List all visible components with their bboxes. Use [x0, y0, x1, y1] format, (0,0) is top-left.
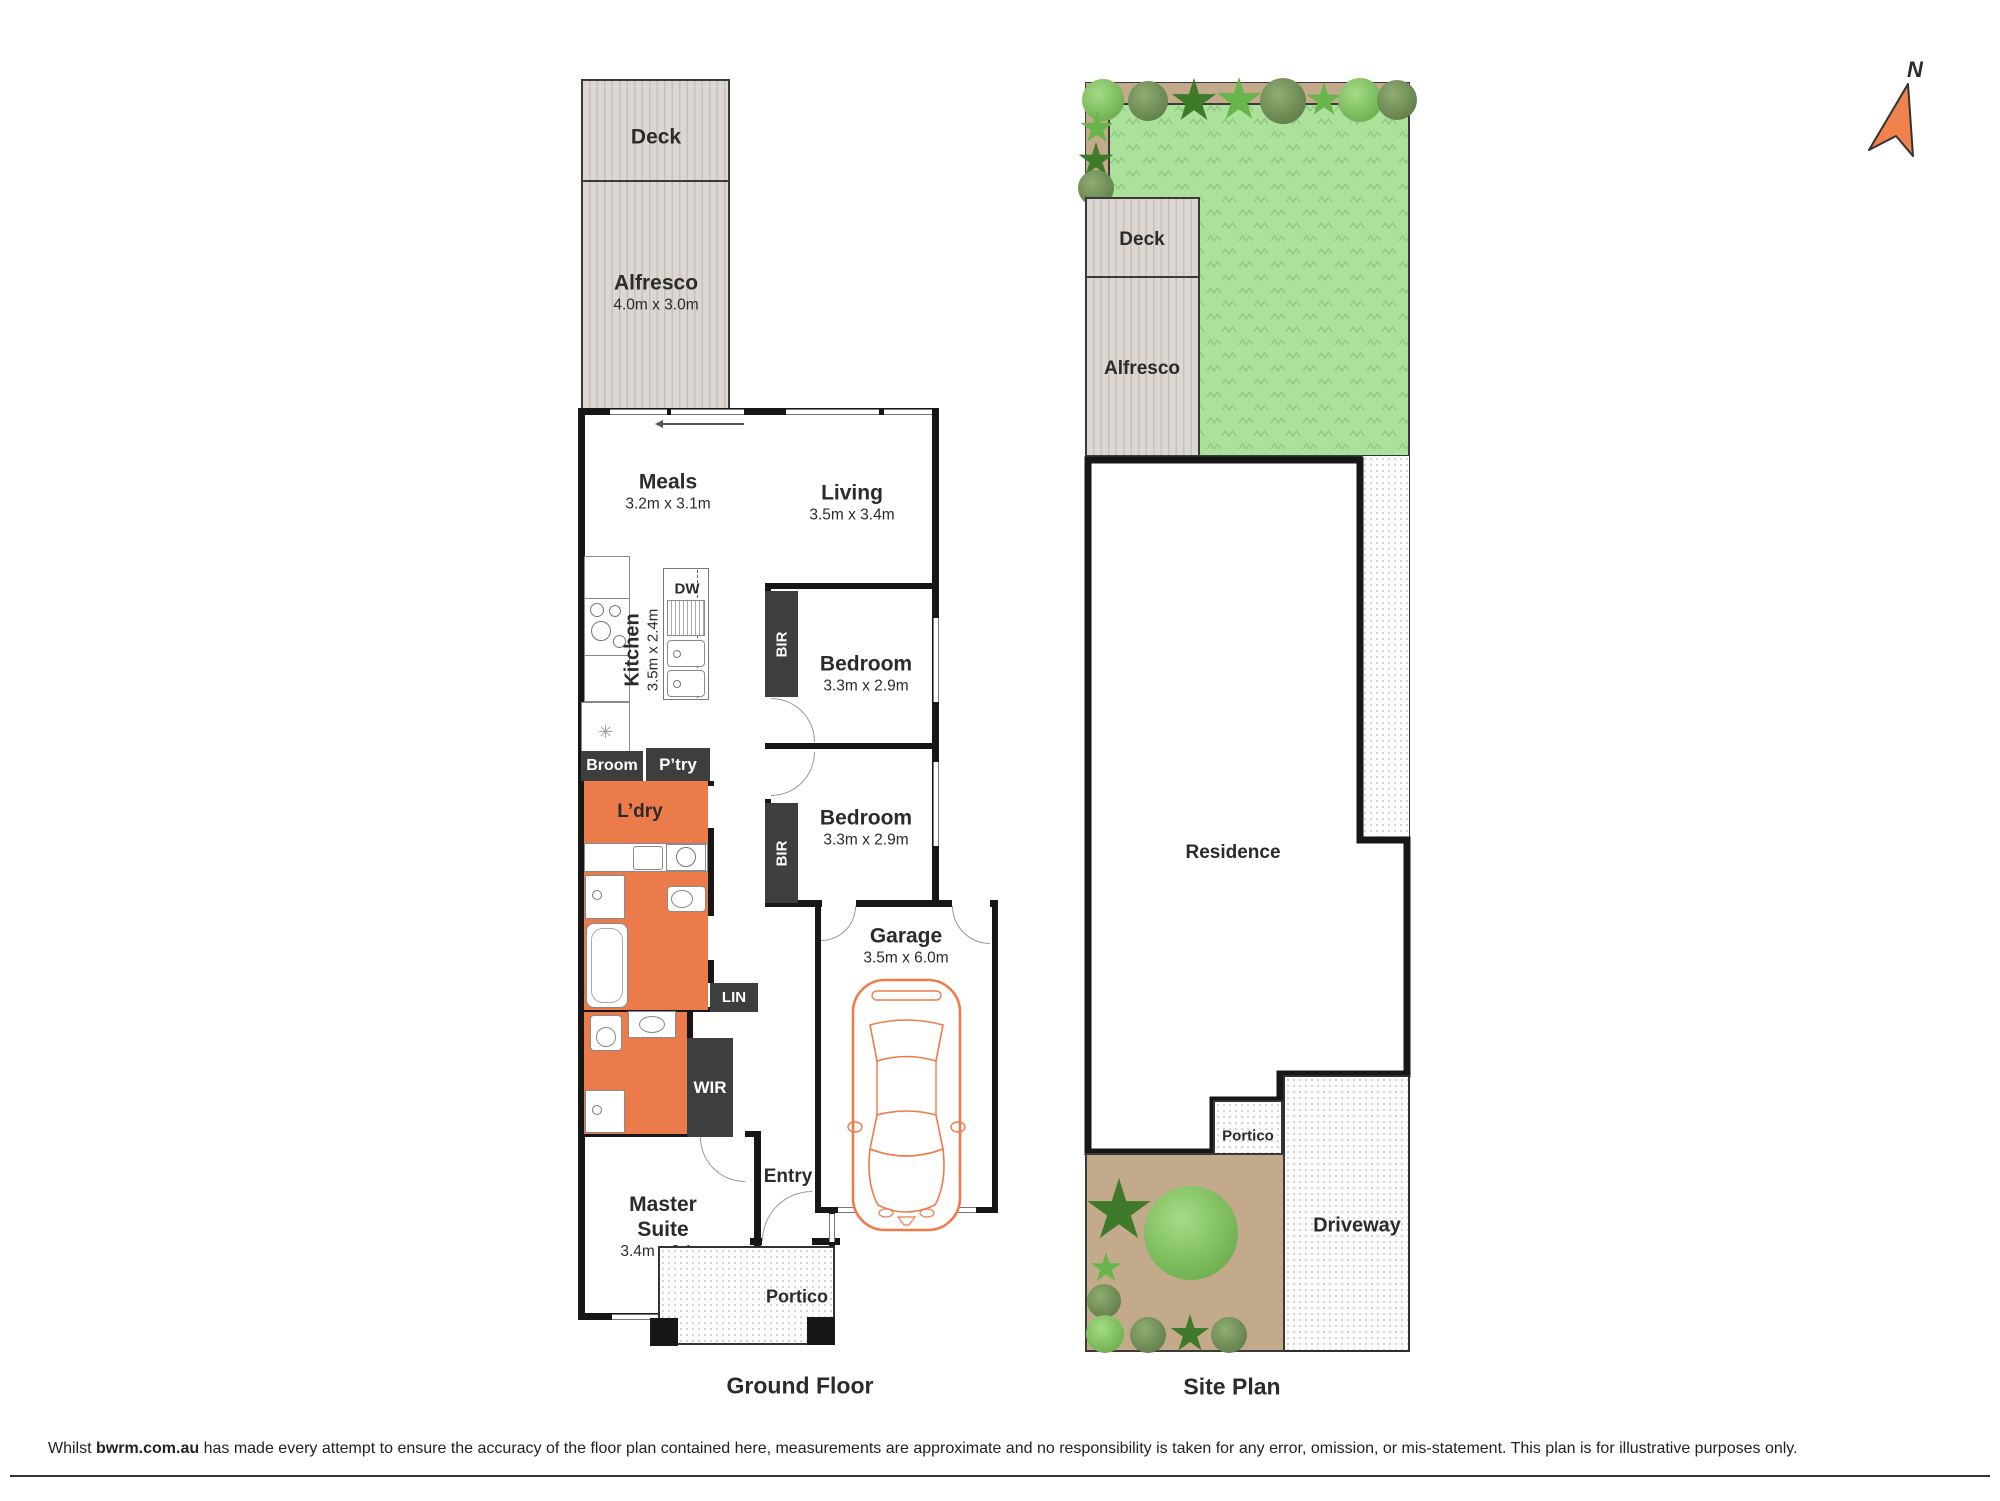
- footer-divider: [10, 1475, 1990, 1477]
- bir-robe-bed1: BIR: [765, 591, 798, 697]
- linen-cupboard: LIN: [710, 983, 758, 1012]
- bedroom1-label: Bedroom 3.3m x 2.9m: [820, 652, 912, 697]
- basin-icon: [639, 1016, 665, 1033]
- vanity-basin: [628, 1011, 676, 1038]
- bush-icon: [1377, 80, 1417, 120]
- window-top-4: [884, 409, 932, 415]
- shower: [585, 875, 625, 919]
- wall-living-bed1: [765, 583, 939, 589]
- sp-alfresco-label: Alfresco: [1104, 358, 1180, 380]
- drain-icon: [673, 680, 681, 688]
- door-gap-bath: [708, 916, 714, 960]
- broom-cupboard: Broom: [581, 751, 643, 781]
- bathtub: [586, 923, 628, 1008]
- living-label: Living 3.5m x 3.4m: [809, 481, 894, 526]
- drain-icon: [592, 890, 602, 900]
- portico-pillar: [650, 1318, 678, 1346]
- door-gap-ldry: [708, 786, 714, 828]
- gf-deck-label: Deck: [631, 124, 681, 149]
- laundry-trough: [633, 846, 663, 870]
- portico-pillar: [807, 1317, 835, 1345]
- bush-icon: [1082, 79, 1124, 121]
- dishwasher: [667, 600, 705, 636]
- drain-icon: [673, 650, 681, 658]
- wall-garage-right: [992, 900, 998, 1213]
- bedroom2-label: Bedroom 3.3m x 2.9m: [820, 806, 912, 851]
- burner-icon: [591, 621, 611, 641]
- sliding-door-arrowhead: [655, 420, 663, 428]
- tree-icon: [1144, 1186, 1238, 1280]
- wall-garage-left: [815, 900, 821, 1213]
- shower: [585, 1090, 625, 1133]
- gf-portico-label: Portico: [766, 1287, 828, 1308]
- bir-robe-bed2: BIR: [765, 803, 798, 903]
- sink-basin: [667, 640, 705, 667]
- toilet: [590, 1015, 622, 1051]
- gf-deck-divider: [581, 180, 730, 182]
- window-bed2: [933, 762, 939, 846]
- garage-label: Garage 3.5m x 6.0m: [863, 924, 948, 969]
- walk-in-robe: WIR: [687, 1038, 733, 1137]
- bathtub-inner: [591, 928, 623, 1003]
- sp-residence-outline: [1080, 452, 1415, 1162]
- entry-label: Entry: [764, 1166, 813, 1188]
- toilet-bowl-icon: [596, 1027, 616, 1047]
- bush-icon: [1087, 1284, 1121, 1318]
- ground-floor-caption: Ground Floor: [727, 1373, 874, 1400]
- toilet-bowl-icon: [671, 890, 693, 908]
- kitchen-label: Kitchen 3.5m x 2.4m: [621, 609, 664, 692]
- car-icon: [846, 975, 967, 1237]
- disclaimer-brand: bwrm.com.au: [96, 1440, 199, 1457]
- drain-icon: [592, 1105, 602, 1115]
- bush-icon: [1130, 1317, 1166, 1353]
- sp-driveway-label: Driveway: [1313, 1215, 1401, 1238]
- window-top-1: [610, 409, 667, 415]
- burner-icon: [590, 603, 604, 617]
- gf-alfresco-label: Alfresco 4.0m x 3.0m: [613, 271, 698, 316]
- sp-driveway-area: [1283, 1075, 1410, 1352]
- bush-icon: [1211, 1317, 1247, 1353]
- sp-portico-label: Portico: [1222, 1128, 1274, 1145]
- wall-bed1-bed2: [765, 743, 939, 749]
- bush-icon: [1338, 78, 1382, 122]
- laundry-label: L’dry: [617, 801, 662, 823]
- pantry-cupboard: P’try: [646, 748, 710, 781]
- sp-deck-label: Deck: [1119, 229, 1164, 251]
- window-bed1: [933, 618, 939, 702]
- disclaimer-part1: Whilst: [48, 1440, 96, 1457]
- sp-residence-label: Residence: [1185, 842, 1280, 864]
- disclaimer-text: Whilst bwrm.com.au has made every attemp…: [48, 1440, 1798, 1458]
- bush-icon: [1128, 81, 1168, 121]
- sliding-door-arrow: [662, 423, 744, 425]
- bush-icon: [1260, 78, 1306, 124]
- meals-label: Meals 3.2m x 3.1m: [625, 470, 710, 515]
- site-plan-caption: Site Plan: [1183, 1374, 1280, 1401]
- disclaimer-part2: has made every attempt to ensure the acc…: [199, 1440, 1797, 1457]
- dishwasher-label: DW: [675, 581, 700, 598]
- window-top-2: [671, 409, 744, 415]
- north-label: N: [1907, 57, 1923, 83]
- window-entry-side: [829, 1214, 835, 1242]
- toilet: [667, 886, 706, 912]
- floor-plan-page: N Deck Alfresco 4.0m x 3.0m: [0, 0, 2000, 1501]
- washing-machine: [666, 844, 706, 871]
- bush-icon: [1086, 1315, 1124, 1353]
- washer-drum-icon: [676, 847, 696, 867]
- window-top-3: [786, 409, 879, 415]
- burner-icon: [609, 605, 621, 617]
- sink-basin: [667, 670, 705, 697]
